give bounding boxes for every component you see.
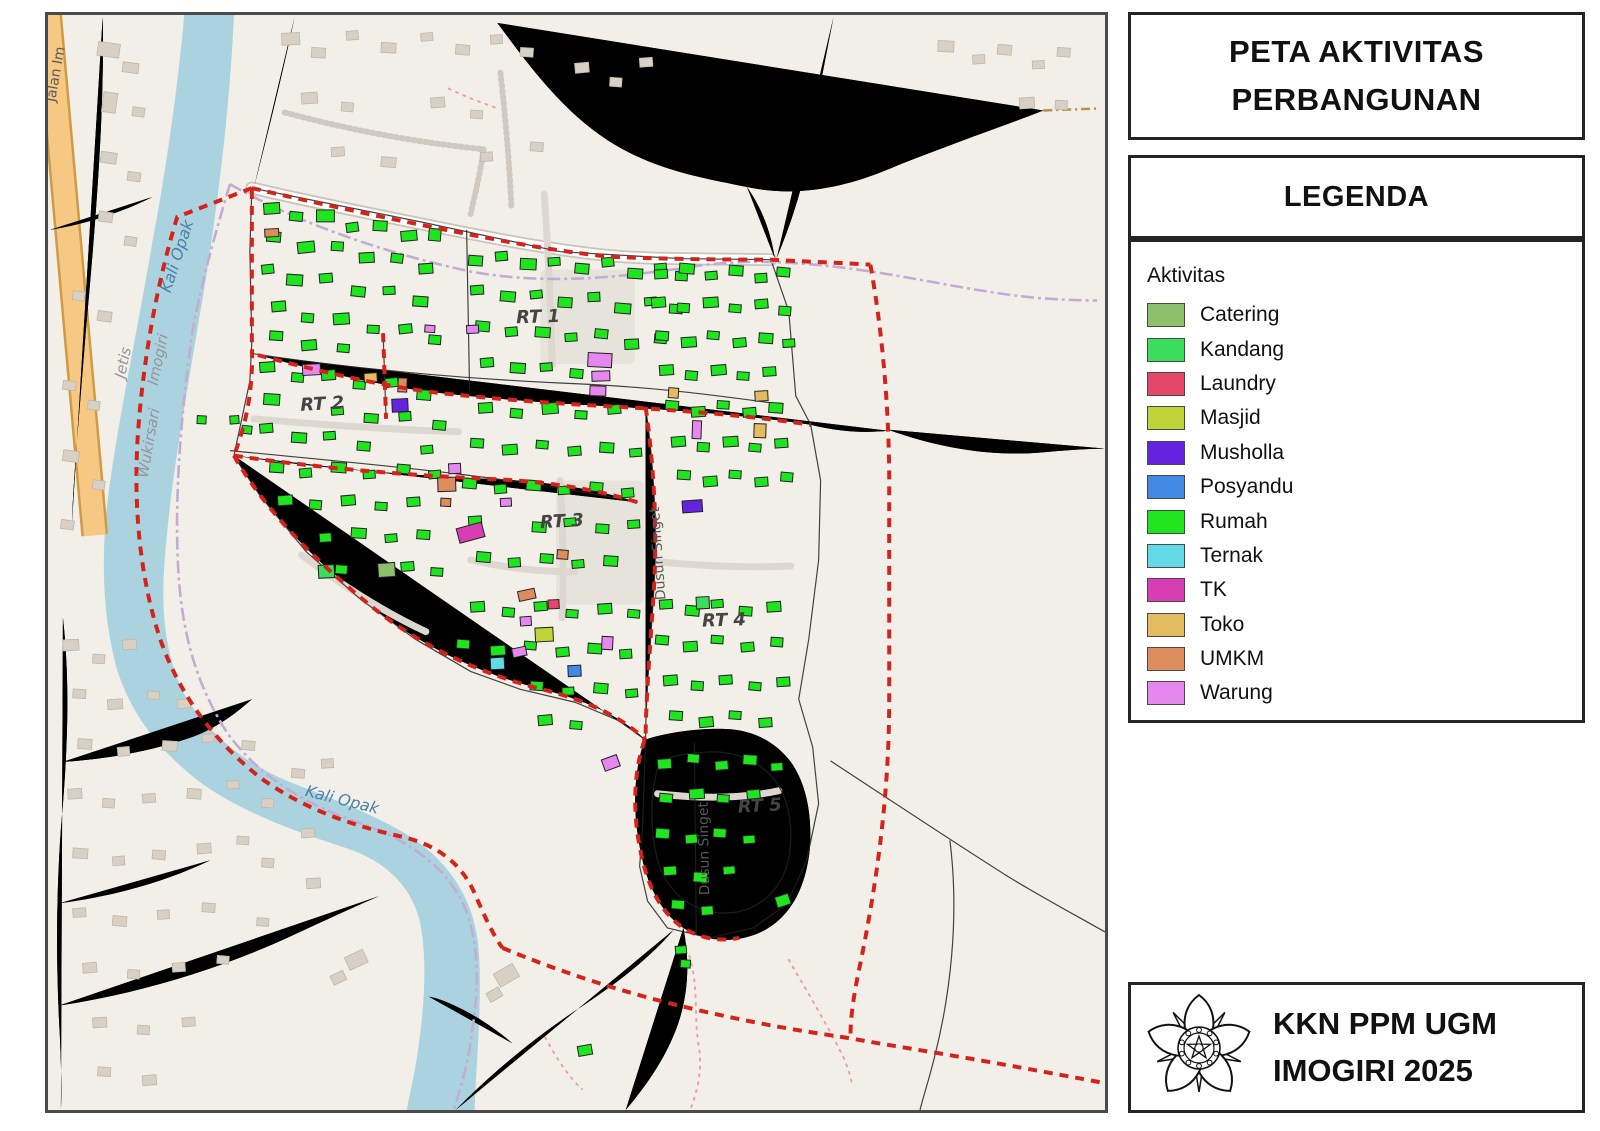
building-rumah: [351, 528, 367, 539]
building-context: [127, 969, 140, 979]
building-rumah: [407, 497, 421, 507]
building-rumah: [502, 607, 515, 617]
building-rumah: [729, 304, 742, 313]
legend-item-kandang[interactable]: Kandang: [1145, 332, 1582, 366]
legend-label: Catering: [1200, 303, 1279, 327]
building-rumah: [494, 484, 507, 494]
building-rumah: [655, 635, 669, 645]
building-context: [470, 110, 482, 119]
legend-item-musholla[interactable]: Musholla: [1145, 436, 1582, 470]
building-context: [281, 32, 299, 45]
building-context: [257, 918, 269, 927]
building-context: [87, 400, 100, 411]
building-context: [62, 450, 79, 463]
building-rumah: [743, 754, 758, 765]
building-rumah: [699, 717, 714, 728]
building-rumah: [301, 340, 317, 351]
building-kandang: [696, 596, 710, 609]
building-context: [122, 62, 139, 74]
building-toko: [755, 391, 768, 402]
building-warung: [466, 325, 478, 334]
building-rumah: [323, 431, 335, 440]
building-context: [100, 151, 117, 164]
building-rumah: [771, 637, 784, 647]
title-panel: PETA AKTIVITAS PERBANGUNAN: [1128, 12, 1585, 140]
building-rumah: [675, 945, 687, 954]
building-rumah: [701, 906, 714, 916]
building-rumah: [500, 291, 516, 302]
building-rumah: [594, 329, 608, 339]
building-context: [202, 734, 214, 743]
building-context: [639, 57, 653, 67]
building-rumah: [346, 222, 359, 233]
building-rumah: [604, 556, 619, 567]
building-context: [455, 44, 470, 55]
building-rumah: [291, 373, 304, 383]
building-rumah: [259, 423, 273, 433]
building-rumah: [780, 472, 793, 482]
building-rumah: [319, 273, 333, 283]
building-rumah: [625, 689, 638, 698]
building-rumah: [375, 502, 387, 511]
building-rumah: [399, 411, 412, 421]
building-rumah: [663, 866, 677, 876]
building-context: [1019, 97, 1035, 109]
building-rumah: [490, 645, 506, 656]
building-rumah: [230, 416, 239, 425]
building-rumah: [677, 470, 691, 480]
building-context: [237, 836, 249, 845]
building-context: [575, 62, 590, 73]
building-context: [92, 1017, 107, 1028]
building-catering: [378, 562, 396, 577]
building-rumah: [723, 866, 736, 875]
legend-layer-name: Aktivitas: [1147, 264, 1582, 288]
building-rumah: [530, 290, 543, 299]
map-canvas[interactable]: Jalan Im Kali Opak Kali Opak Jetis Imogi…: [45, 12, 1108, 1113]
building-rumah: [263, 202, 280, 214]
building-rumah: [683, 641, 698, 652]
masjid-swatch: [1147, 406, 1185, 430]
building-rumah: [687, 753, 700, 763]
building-context: [152, 850, 166, 860]
building-context: [68, 788, 83, 799]
building-rumah: [385, 534, 398, 543]
legend-label: Masjid: [1200, 406, 1261, 430]
label-rt-3: RT 3: [539, 510, 584, 533]
building-musholla: [392, 398, 409, 412]
building-rumah: [729, 711, 741, 720]
legend-label: Posyandu: [1200, 475, 1293, 499]
building-posyandu: [568, 665, 581, 677]
legend-title: LEGENDA: [1284, 181, 1429, 214]
building-rumah: [776, 267, 790, 277]
rumah-swatch: [1147, 510, 1185, 534]
building-context: [346, 30, 359, 40]
building-rumah: [383, 286, 395, 295]
building-rumah: [588, 643, 603, 654]
building-context: [1057, 47, 1071, 57]
building-rumah: [391, 253, 404, 263]
building-rumah: [289, 211, 303, 221]
building-umkm: [557, 550, 569, 560]
building-rumah: [679, 263, 695, 274]
building-rumah: [535, 327, 551, 338]
building-rumah: [590, 482, 604, 492]
building-context: [227, 780, 239, 789]
legend-item-tk[interactable]: TK: [1145, 573, 1582, 607]
building-context: [162, 741, 178, 752]
building-rumah: [767, 601, 782, 612]
building-context: [92, 480, 105, 491]
building-context: [142, 1075, 157, 1086]
building-rumah: [413, 296, 429, 307]
legend-label: TK: [1200, 578, 1227, 602]
building-rumah: [540, 363, 552, 372]
building-rumah: [570, 721, 583, 730]
building-rumah: [707, 331, 720, 340]
building-rumah: [470, 285, 484, 295]
building-rumah: [593, 683, 608, 694]
building-rumah: [737, 372, 749, 381]
building-rumah: [621, 488, 634, 498]
building-context: [112, 915, 127, 926]
building-warung: [692, 421, 702, 439]
building-rumah: [568, 446, 582, 456]
building-rumah: [697, 442, 710, 452]
legend-item-ternak[interactable]: Ternak: [1145, 539, 1582, 573]
building-rumah: [629, 448, 641, 457]
building-context: [331, 147, 345, 157]
building-context: [127, 171, 141, 182]
building-rumah: [689, 788, 705, 799]
building-warung: [425, 325, 435, 333]
building-rumah: [566, 609, 578, 618]
legend-label: Kandang: [1200, 338, 1284, 362]
building-rumah: [596, 524, 610, 534]
building-context: [132, 107, 145, 118]
building-rumah: [759, 333, 774, 344]
toko-swatch: [1147, 613, 1185, 637]
building-context: [78, 739, 93, 750]
building-context: [997, 44, 1012, 55]
building-rumah: [705, 271, 718, 280]
building-rumah: [261, 264, 274, 274]
map-title-line2: PERBANGUNAN: [1231, 76, 1481, 124]
building-context: [137, 1025, 150, 1035]
building-rumah: [548, 257, 560, 266]
building-context: [242, 740, 256, 750]
building-masjid: [535, 627, 554, 642]
building-rumah: [680, 959, 690, 968]
building-rumah: [755, 273, 768, 283]
building-rumah: [269, 331, 283, 341]
building-context: [142, 793, 156, 803]
building-context: [306, 878, 321, 889]
building-rumah: [755, 299, 769, 309]
building-rumah: [749, 443, 762, 452]
building-context: [321, 759, 334, 769]
building-warung: [592, 371, 610, 382]
building-rumah: [655, 828, 670, 839]
building-rumah: [259, 362, 275, 373]
building-context: [147, 691, 160, 700]
building-context: [60, 519, 74, 530]
building-context: [381, 42, 396, 53]
building-rumah: [663, 675, 678, 686]
building-context: [1032, 60, 1044, 69]
building-rumah: [775, 438, 789, 448]
building-rumah: [627, 268, 643, 279]
building-context: [1055, 100, 1067, 110]
building-context: [520, 47, 534, 57]
kandang-swatch: [1147, 338, 1185, 362]
legend-item-posyandu[interactable]: Posyandu: [1145, 470, 1582, 504]
building-rumah: [468, 255, 483, 266]
building-rumah: [715, 760, 729, 770]
building-context: [101, 92, 118, 114]
ternak-swatch: [1147, 544, 1185, 568]
building-context: [291, 768, 305, 778]
building-rumah: [299, 468, 312, 478]
building-rumah: [627, 609, 640, 618]
legend-label: Musholla: [1200, 441, 1284, 465]
building-ternak: [490, 657, 505, 670]
building-rumah: [763, 367, 777, 377]
building-context: [261, 858, 274, 868]
building-rumah: [703, 297, 719, 308]
building-rumah: [534, 601, 548, 611]
building-rumah: [723, 436, 739, 447]
building-rumah: [703, 476, 718, 487]
legend-header-panel: LEGENDA: [1128, 155, 1585, 239]
building-rumah: [417, 530, 431, 540]
building-context: [92, 654, 105, 664]
building-context: [72, 291, 85, 302]
building-rumah: [713, 828, 727, 838]
musholla-swatch: [1147, 441, 1185, 465]
label-rt-1: RT 1: [516, 306, 561, 329]
building-rumah: [577, 1044, 592, 1056]
building-rumah: [729, 265, 744, 276]
building-rumah: [364, 413, 379, 423]
building-rumah: [353, 381, 365, 390]
building-rumah: [717, 400, 729, 409]
building-context: [117, 746, 130, 756]
building-context: [107, 699, 123, 710]
warung-swatch: [1147, 681, 1185, 705]
building-rumah: [480, 358, 494, 368]
building-context: [62, 380, 76, 391]
building-context: [530, 142, 544, 152]
building-rumah: [470, 601, 485, 612]
building-warung: [588, 353, 613, 368]
building-context: [73, 848, 89, 859]
building-context: [301, 828, 315, 838]
legend-item-rumah[interactable]: Rumah: [1145, 504, 1582, 538]
building-context: [490, 35, 502, 45]
building-rumah: [271, 301, 286, 312]
legend-label: UMKM: [1200, 647, 1264, 671]
map-title-line1: PETA AKTIVITAS: [1229, 28, 1484, 76]
building-umkm: [265, 228, 279, 237]
legend-items-panel: Aktivitas CateringKandangLaundryMasjidMu…: [1128, 239, 1585, 723]
building-context: [63, 639, 79, 651]
building-rumah: [671, 436, 686, 447]
label-rt-4: RT 4: [702, 609, 747, 632]
building-rumah: [681, 337, 697, 348]
building-context: [197, 843, 212, 854]
building-rumah: [711, 364, 727, 375]
building-context: [610, 77, 623, 87]
laundry-swatch: [1147, 372, 1185, 396]
building-context: [97, 1067, 111, 1077]
building-rumah: [771, 762, 783, 771]
label-dusun-singet-2: Dusun Singet: [696, 801, 714, 895]
building-context: [301, 92, 318, 104]
legend-label: Rumah: [1200, 510, 1268, 534]
building-context: [73, 689, 87, 699]
building-warung: [520, 616, 532, 626]
building-rumah: [659, 365, 674, 376]
building-warung: [590, 386, 606, 396]
building-rumah: [421, 445, 434, 454]
building-rumah: [627, 520, 639, 529]
building-rumah: [575, 410, 587, 419]
building-rumah: [717, 794, 729, 803]
building-rumah: [711, 635, 723, 644]
building-rumah: [419, 263, 434, 274]
building-laundry: [548, 600, 559, 610]
building-warung: [448, 463, 460, 474]
building-rumah: [777, 677, 791, 687]
building-rumah: [373, 221, 387, 232]
building-rumah: [779, 306, 792, 316]
building-rumah: [769, 402, 784, 413]
legend-item-masjid[interactable]: Masjid: [1145, 401, 1582, 435]
building-rumah: [291, 432, 307, 443]
building-warung: [500, 498, 511, 507]
building-rumah: [286, 274, 303, 286]
building-context: [261, 798, 274, 808]
ugm-logo: [1147, 991, 1251, 1105]
building-rumah: [431, 568, 443, 577]
building-rumah: [277, 495, 293, 506]
building-rumah: [691, 681, 704, 691]
building-rumah: [655, 331, 669, 341]
building-context: [972, 54, 985, 64]
building-rumah: [685, 371, 698, 381]
legend-item-catering[interactable]: Catering: [1145, 298, 1582, 332]
footer-line1: KKN PPM UGM: [1273, 1001, 1497, 1048]
building-rumah: [476, 551, 491, 562]
building-context: [938, 40, 954, 52]
building-umkm: [441, 498, 451, 506]
building-context: [157, 910, 170, 920]
legend-label: Ternak: [1200, 544, 1263, 568]
building-context: [381, 157, 397, 168]
legend-label: Laundry: [1200, 372, 1276, 396]
building-rumah: [333, 313, 350, 325]
legend-item-warung[interactable]: Warung: [1145, 676, 1582, 710]
building-rumah: [337, 344, 350, 353]
building-rumah: [301, 313, 314, 323]
building-context: [172, 962, 186, 972]
building-context: [124, 236, 137, 247]
building-rumah: [470, 438, 484, 448]
building-rumah: [733, 338, 747, 348]
building-rumah: [588, 292, 600, 302]
building-context: [102, 798, 115, 808]
catering-swatch: [1147, 303, 1185, 327]
map-svg: Jalan Im Kali Opak Kali Opak Jetis Imogi…: [48, 15, 1105, 1110]
building-context: [97, 41, 121, 58]
building-rumah: [335, 564, 348, 574]
building-rumah: [357, 441, 371, 451]
building-rumah: [367, 325, 379, 334]
page: Jalan Im Kali Opak Kali Opak Jetis Imogi…: [0, 0, 1600, 1131]
building-context: [182, 1017, 196, 1027]
building-rumah: [502, 444, 518, 455]
building-context: [98, 211, 113, 223]
building-rumah: [478, 402, 493, 413]
legend-item-laundry[interactable]: Laundry: [1145, 367, 1582, 401]
tk-swatch: [1147, 578, 1185, 602]
building-context: [97, 310, 112, 322]
building-rumah: [538, 715, 553, 726]
legend-item-umkm[interactable]: UMKM: [1145, 642, 1582, 676]
building-rumah: [619, 649, 632, 659]
building-rumah: [508, 558, 521, 568]
building-rumah: [197, 416, 206, 424]
building-rumah: [659, 793, 673, 803]
building-rumah: [510, 363, 526, 374]
footer-line2: IMOGIRI 2025: [1273, 1048, 1497, 1095]
building-rumah: [743, 835, 755, 844]
building-warung: [602, 636, 614, 649]
building-rumah: [558, 297, 573, 308]
building-rumah: [677, 303, 690, 313]
building-musholla: [682, 500, 703, 513]
building-context: [112, 856, 125, 866]
building-rumah: [309, 500, 322, 510]
legend-item-toko[interactable]: Toko: [1145, 608, 1582, 642]
building-context: [73, 908, 87, 918]
building-rumah: [741, 642, 755, 652]
building-rumah: [614, 303, 631, 314]
building-rumah: [755, 477, 769, 487]
building-rumah: [432, 420, 446, 430]
legend-label: Toko: [1200, 613, 1244, 637]
building-rumah: [401, 230, 418, 241]
building-context: [217, 955, 230, 964]
building-rumah: [575, 263, 590, 274]
building-rumah: [319, 533, 332, 543]
posyandu-swatch: [1147, 475, 1185, 499]
label-rt-2: RT 2: [300, 393, 345, 416]
building-rumah: [456, 639, 470, 649]
building-rumah: [495, 251, 508, 261]
building-rumah: [600, 442, 615, 453]
building-rumah: [540, 554, 554, 564]
building-rumah: [428, 335, 441, 345]
building-rumah: [570, 369, 584, 379]
building-context: [187, 788, 202, 799]
building-rumah: [331, 241, 344, 251]
building-context: [122, 639, 137, 650]
building-rumah: [729, 470, 741, 479]
building-context: [341, 102, 354, 112]
